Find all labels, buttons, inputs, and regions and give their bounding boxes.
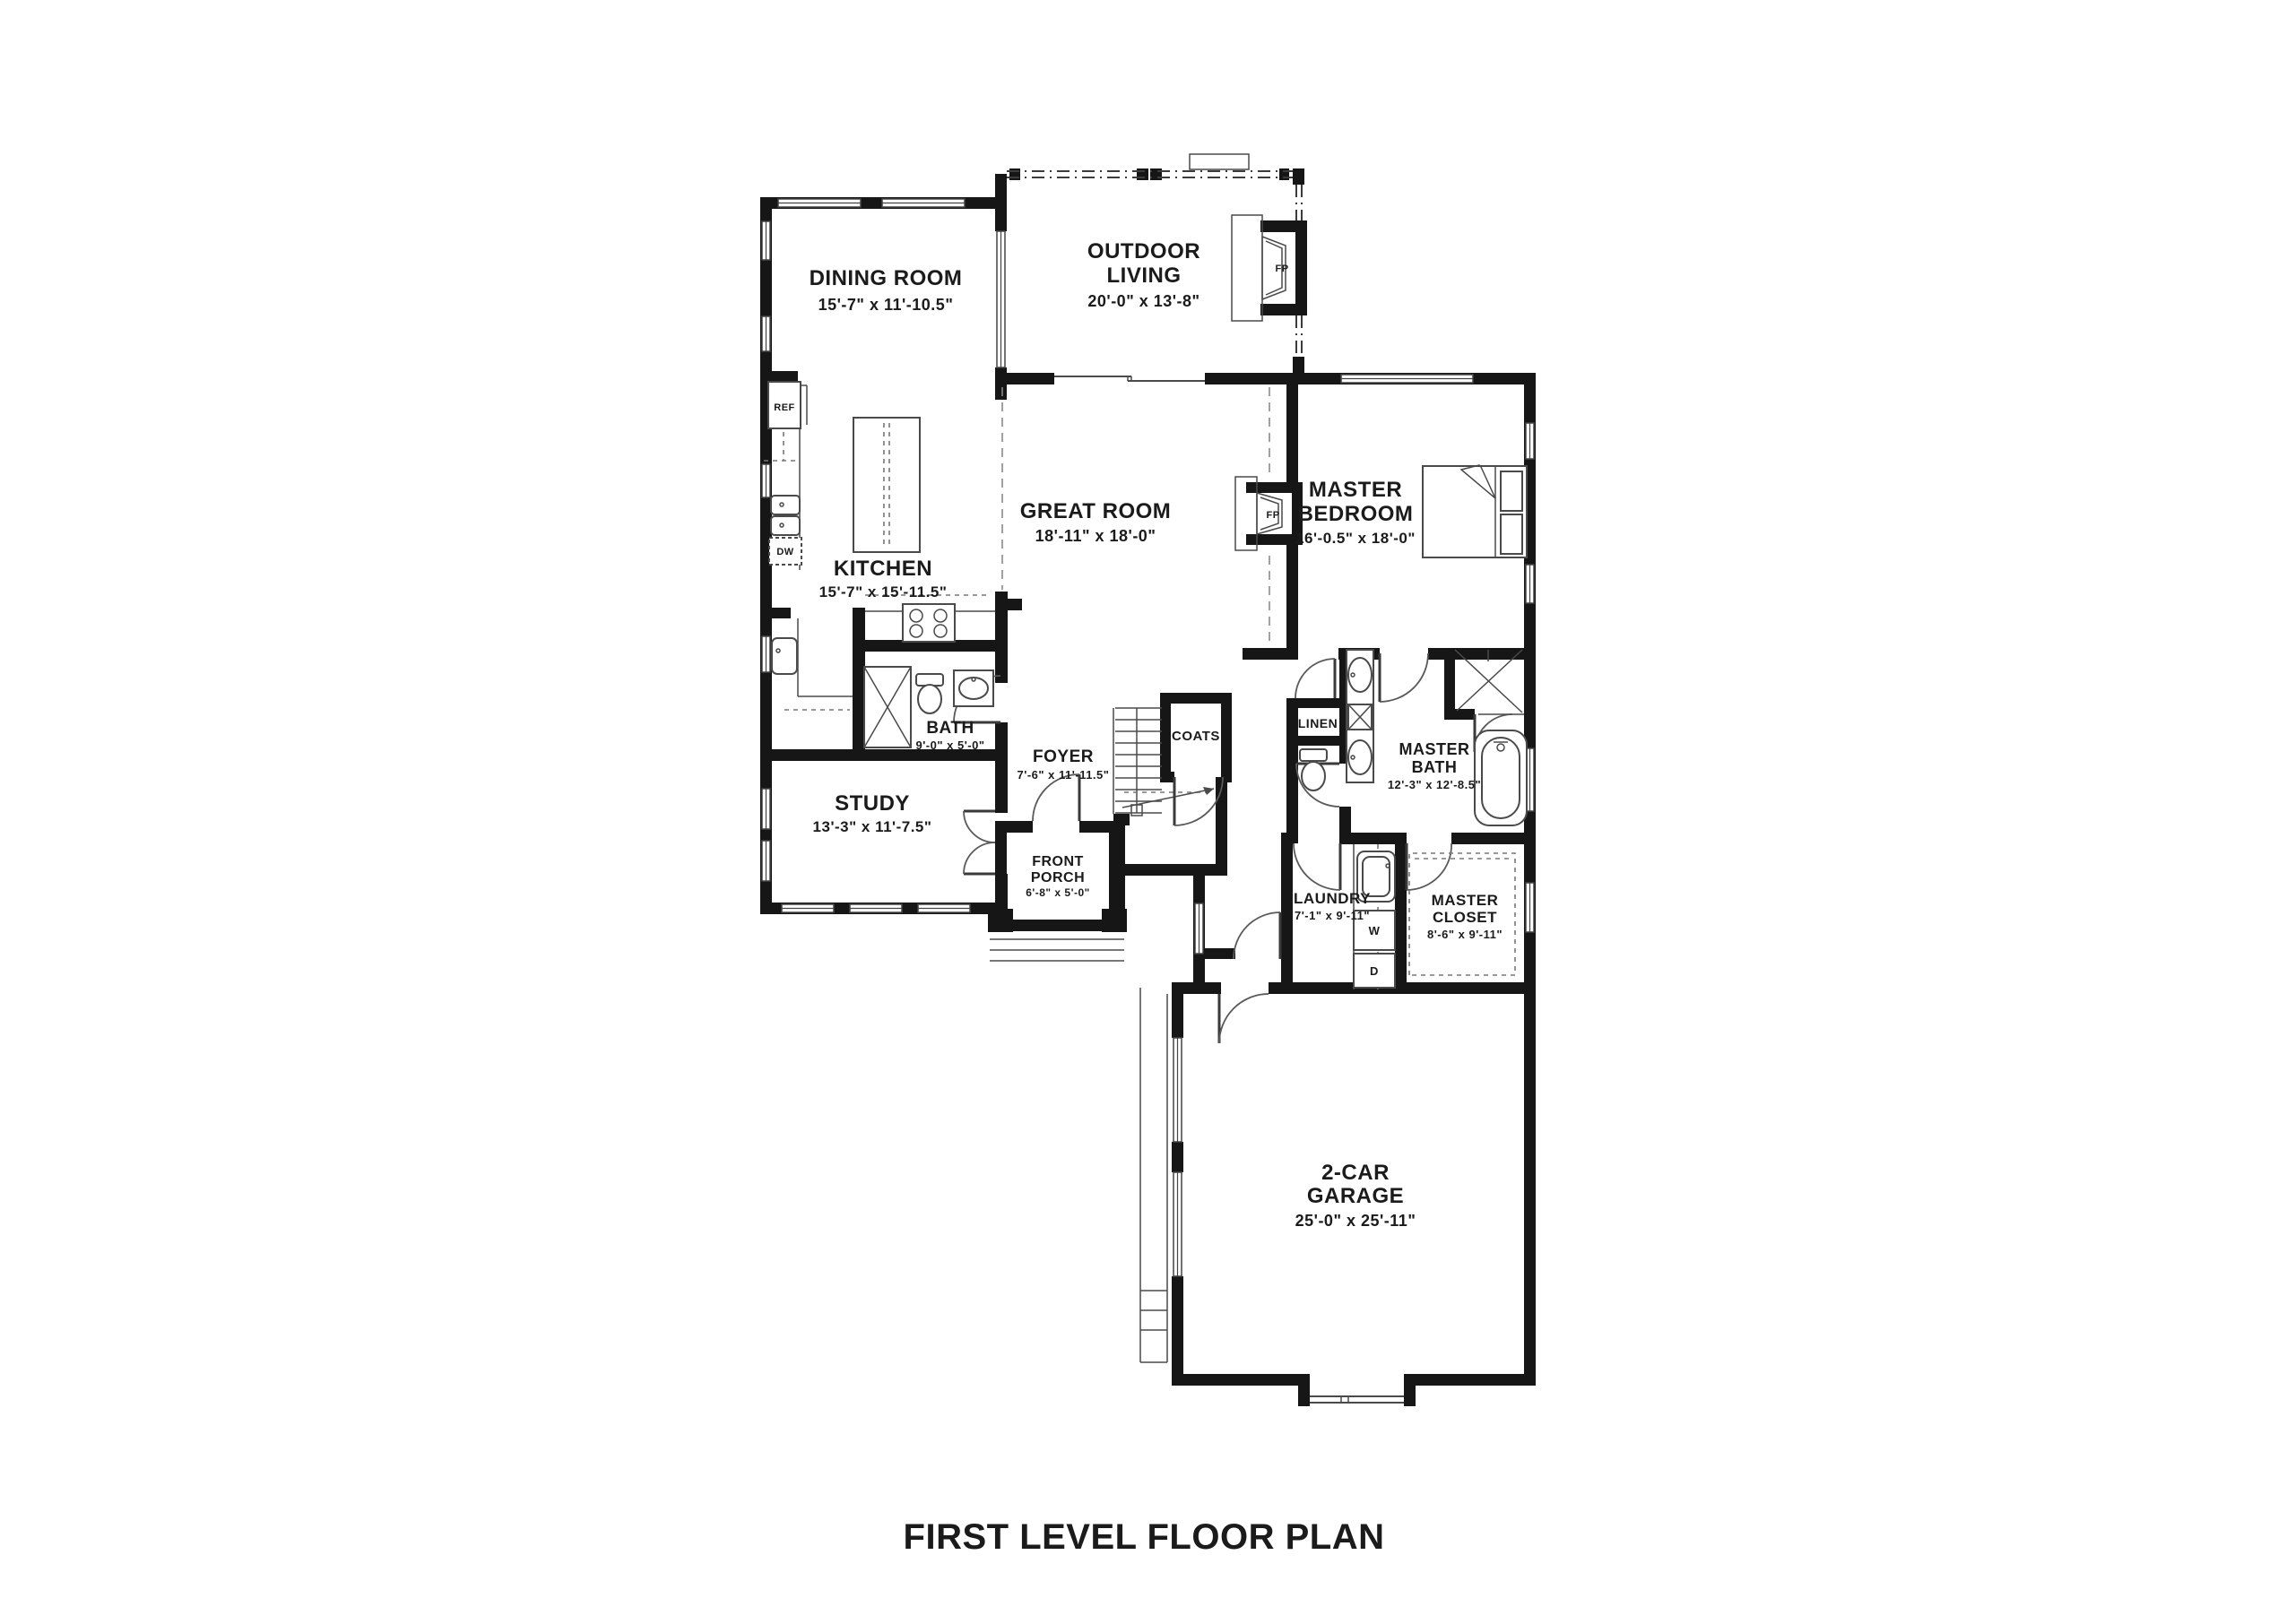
label-master-closet: MASTER CLOSET 8'-6" x 9'-11" [1427, 892, 1503, 941]
front-porch-name-1: FRONT [1032, 854, 1084, 869]
garage-dims: 25'-0" x 25'-11" [1295, 1212, 1416, 1230]
master-bath-name-2: BATH [1412, 758, 1458, 776]
label-master-bedroom: MASTER BEDROOM 16'-0.5" x 18'-0" [1295, 478, 1416, 547]
outdoor-living-dims: 20'-0" x 13'-8" [1087, 292, 1199, 310]
interior-walls [760, 220, 1536, 994]
floor-plan-drawing: DINING ROOM 15'-7" x 11'-10.5" OUTDOOR L… [0, 0, 2295, 1624]
outdoor-living-name-2: LIVING [1106, 263, 1181, 288]
kitchen-dims: 15'-7" x 15'-11.5" [819, 583, 948, 600]
study-french-doors [964, 811, 995, 874]
side-walkway [1140, 988, 1167, 1362]
master-bath-name-1: MASTER [1399, 740, 1470, 758]
label-front-porch: FRONT PORCH 6'-8" x 5'-0" [1026, 854, 1090, 899]
great-room-name: GREAT ROOM [1020, 499, 1172, 523]
great-room-fireplace-label: FP [1266, 510, 1279, 521]
coats-label: COATS [1172, 729, 1220, 744]
kitchen-sink [771, 496, 800, 535]
kitchen-name: KITCHEN [834, 557, 932, 581]
kitchen-fixtures [764, 382, 995, 710]
dishwasher-label: DW [776, 547, 793, 557]
wc-toilet [1300, 749, 1327, 790]
dining-room-dims: 15'-7" x 11'-10.5" [818, 296, 954, 314]
outdoor-fireplace-label: FP [1275, 263, 1288, 274]
laundry-dims: 7'-1" x 9'-11" [1295, 909, 1370, 922]
cooktop [903, 604, 955, 642]
mud-hall-door [1234, 912, 1280, 959]
label-bath: BATH 9'-0" x 5'-0" [915, 719, 984, 752]
linen-label: LINEN [1298, 716, 1338, 730]
master-closet-door [1407, 843, 1451, 890]
dining-room-name: DINING ROOM [810, 266, 963, 290]
garage-name-2: GARAGE [1307, 1184, 1404, 1208]
garage-door [1310, 1396, 1404, 1403]
pantry-counter [772, 618, 853, 710]
foyer-name: FOYER [1033, 747, 1094, 766]
label-foyer: FOYER 7'-6" x 11'-11.5" [1018, 747, 1110, 782]
master-bath-dims: 12'-3" x 12'-8.5" [1388, 778, 1481, 791]
master-closet-dims: 8'-6" x 9'-11" [1427, 928, 1503, 941]
master-closet-name-2: CLOSET [1433, 909, 1497, 926]
label-great-room: GREAT ROOM 18'-11" x 18'-0" [1020, 499, 1172, 545]
tub [1475, 730, 1527, 825]
master-bedroom-name-2: BEDROOM [1298, 502, 1414, 526]
study-dims: 13'-3" x 11'-7.5" [813, 818, 932, 835]
bath-toilet [916, 674, 943, 713]
garage-name-1: 2-CAR [1321, 1161, 1390, 1185]
label-study: STUDY 13'-3" x 11'-7.5" [813, 791, 932, 835]
master-closet-name-1: MASTER [1432, 892, 1499, 909]
room-labels: DINING ROOM 15'-7" x 11'-10.5" OUTDOOR L… [810, 239, 1503, 1230]
laundry-name: LAUNDRY [1294, 890, 1371, 907]
dryer-label: D [1370, 964, 1379, 978]
bath-dims: 9'-0" x 5'-0" [915, 739, 984, 752]
garage-entry-door [1219, 994, 1269, 1043]
bed [1423, 465, 1527, 557]
label-garage: 2-CAR GARAGE 25'-0" x 25'-11" [1295, 1161, 1416, 1230]
great-room-dims: 18'-11" x 18'-0" [1035, 527, 1156, 545]
label-laundry: LAUNDRY 7'-1" x 9'-11" [1294, 890, 1371, 922]
front-porch-dims: 6'-8" x 5'-0" [1026, 886, 1090, 899]
plan-title: FIRST LEVEL FLOOR PLAN [904, 1517, 1385, 1557]
kitchen-island [853, 418, 920, 552]
study-name: STUDY [835, 791, 910, 816]
laundry-door [1294, 843, 1340, 890]
label-master-bath: MASTER BATH 12'-3" x 12'-8.5" [1388, 740, 1481, 791]
master-bedroom-dims: 16'-0.5" x 18'-0" [1295, 530, 1416, 547]
front-porch-name-2: PORCH [1031, 870, 1085, 885]
label-dining-room: DINING ROOM 15'-7" x 11'-10.5" [810, 266, 963, 314]
label-kitchen: KITCHEN 15'-7" x 15'-11.5" [819, 557, 948, 600]
bath-shower [864, 667, 911, 747]
coats-door [1174, 777, 1223, 825]
chimney [1190, 154, 1249, 169]
vanity [1347, 650, 1373, 782]
pantry-sink [772, 638, 797, 674]
washer-label: W [1369, 924, 1381, 937]
bath-name: BATH [926, 719, 974, 738]
master-suite-door [1380, 653, 1428, 702]
linen-door [1295, 659, 1335, 698]
master-bedroom-name-1: MASTER [1309, 478, 1402, 502]
label-outdoor-living: OUTDOOR LIVING 20'-0" x 13'-8" [1087, 239, 1200, 310]
outdoor-living-name-1: OUTDOOR [1087, 239, 1200, 263]
refrigerator-label: REF [774, 402, 795, 413]
foyer-dims: 7'-6" x 11'-11.5" [1018, 768, 1110, 782]
bath-sink [954, 670, 993, 706]
